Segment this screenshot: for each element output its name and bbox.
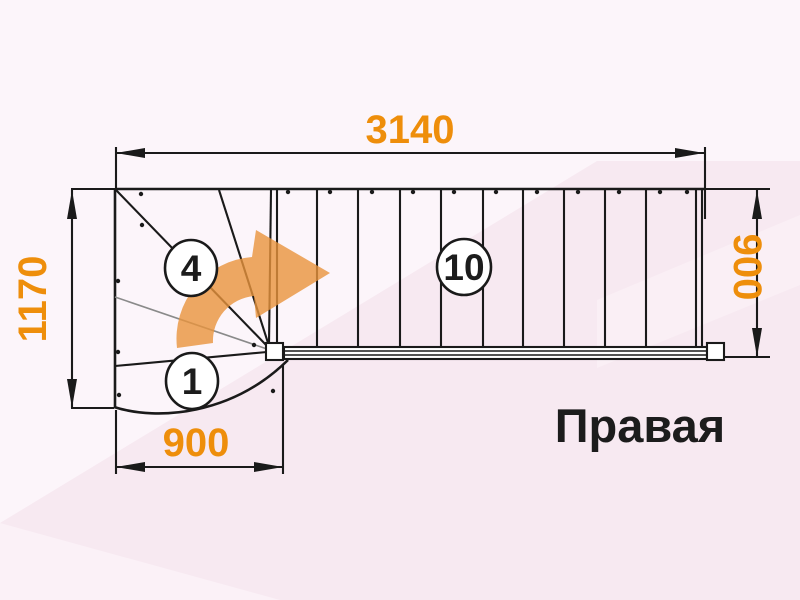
stringer-band <box>284 347 707 359</box>
dimension-left: 1170 <box>11 189 115 408</box>
dimension-right-value: 900 <box>725 234 769 301</box>
dimension-left-value: 1170 <box>11 256 55 343</box>
orientation-label: Правая <box>555 399 725 452</box>
step-marker-1-label: 1 <box>182 361 203 402</box>
step-marker-4-label: 4 <box>181 248 202 289</box>
dimension-top-value: 3140 <box>366 108 455 152</box>
newel-post-right <box>707 343 724 360</box>
staircase-plan-page: 1 4 10 3140 1170 <box>0 0 800 600</box>
newel-post-left <box>266 343 283 360</box>
staircase-plan-drawing: 1 4 10 3140 1170 <box>0 0 800 600</box>
step-marker-10-label: 10 <box>443 247 484 288</box>
dimension-bottom-value: 900 <box>163 421 230 465</box>
